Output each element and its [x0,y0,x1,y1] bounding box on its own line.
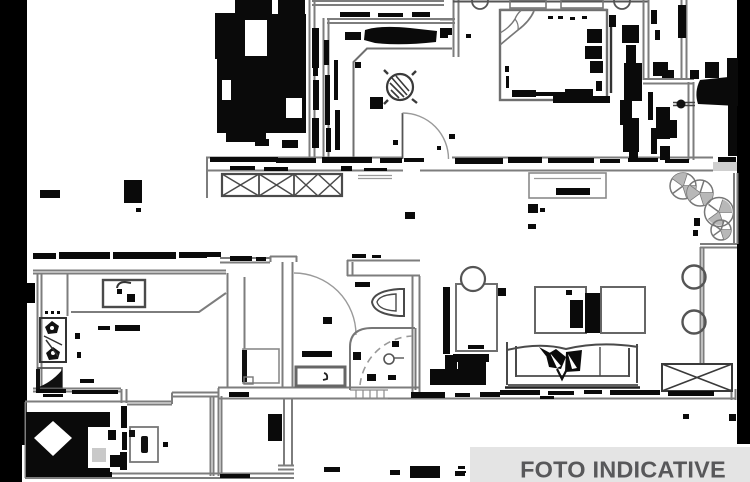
svg-text:FOTO INDICATIVE: FOTO INDICATIVE [520,457,726,482]
